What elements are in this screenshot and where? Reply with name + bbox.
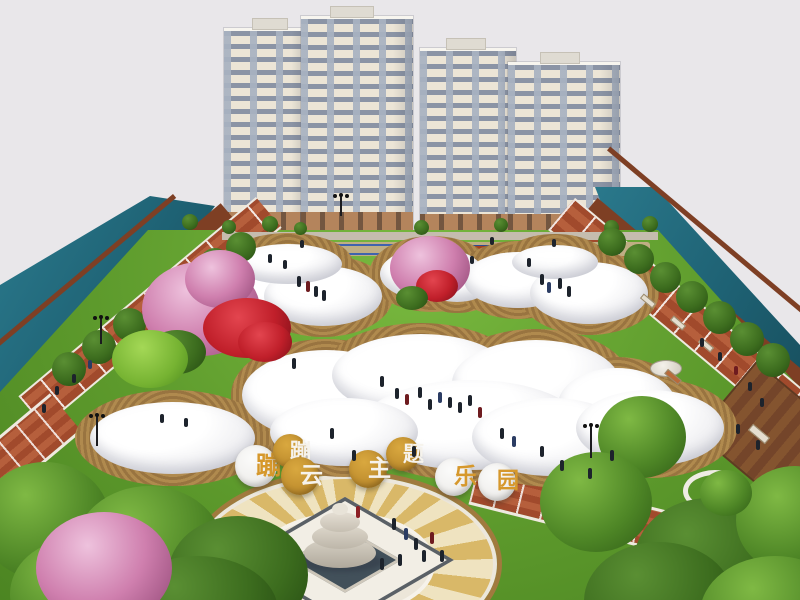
person	[470, 256, 474, 264]
sign-circle-7: 园	[478, 463, 516, 501]
tree	[182, 214, 198, 230]
person	[395, 388, 399, 399]
tree	[756, 343, 790, 377]
street-lamp	[100, 318, 102, 344]
person	[718, 352, 722, 361]
shrub	[396, 286, 428, 310]
person	[560, 460, 564, 471]
person	[405, 394, 409, 405]
tree	[82, 330, 116, 364]
big-leaf-plant	[112, 330, 188, 388]
person	[314, 286, 318, 297]
person	[404, 528, 408, 540]
person	[283, 260, 287, 269]
street-lamp	[340, 196, 342, 216]
person	[297, 276, 301, 287]
tree	[700, 470, 752, 516]
rooftop-structure	[446, 38, 486, 50]
tree	[294, 222, 307, 235]
person	[300, 240, 304, 248]
apartment-tower	[420, 48, 516, 234]
person	[512, 436, 516, 447]
person	[547, 282, 551, 293]
person	[414, 538, 418, 550]
street-lamp	[590, 426, 592, 458]
person	[440, 550, 444, 562]
person	[448, 397, 452, 408]
sign-circle-6: 乐	[435, 458, 473, 496]
tree	[540, 452, 652, 552]
person	[468, 395, 472, 406]
person	[418, 387, 422, 398]
person	[412, 446, 416, 457]
tree	[222, 220, 236, 234]
tree	[52, 352, 86, 386]
person	[55, 386, 59, 395]
person	[392, 518, 396, 530]
person	[527, 258, 531, 267]
apartment-tower	[224, 28, 306, 232]
person	[558, 278, 562, 289]
sign-circle-1: 蹦	[235, 445, 277, 487]
person	[490, 237, 494, 245]
person	[322, 290, 326, 301]
tree	[624, 244, 654, 274]
person	[700, 338, 704, 347]
render-canvas: 蹦 蹦 云 主 题 乐 园	[0, 0, 800, 600]
person	[42, 404, 46, 413]
person	[588, 468, 592, 479]
sign-char: 园	[497, 463, 519, 501]
person	[356, 506, 360, 518]
person	[760, 398, 764, 407]
person	[734, 366, 738, 375]
person	[567, 286, 571, 297]
person	[552, 239, 556, 247]
fountain-tier	[320, 512, 360, 532]
tree	[642, 216, 658, 232]
person	[398, 554, 402, 566]
tree	[676, 281, 708, 313]
person	[500, 428, 504, 439]
person	[748, 382, 752, 391]
fountain-top	[332, 503, 348, 515]
person	[428, 399, 432, 410]
tree	[598, 228, 626, 256]
apartment-tower	[301, 16, 413, 232]
person	[380, 558, 384, 570]
bouncing-cloud-pad	[90, 402, 255, 474]
person	[72, 374, 76, 383]
rooftop-structure	[540, 52, 580, 64]
tree	[703, 301, 736, 334]
tree	[650, 262, 681, 293]
person	[756, 440, 760, 450]
person	[352, 450, 356, 461]
street-lamp	[96, 416, 98, 446]
rooftop-structure	[252, 18, 288, 30]
person	[438, 392, 442, 403]
person	[610, 450, 614, 461]
rose-bush	[238, 322, 292, 362]
sign-char: 乐	[454, 458, 477, 496]
tree	[494, 218, 508, 232]
person	[540, 274, 544, 285]
sign-circle-3: 云	[281, 457, 319, 495]
person	[736, 424, 740, 434]
tree	[262, 216, 278, 232]
rooftop-structure	[330, 6, 374, 18]
person	[306, 281, 310, 292]
person	[330, 428, 334, 439]
person	[268, 254, 272, 263]
person	[458, 402, 462, 413]
person	[88, 360, 92, 369]
person	[422, 550, 426, 562]
person	[292, 358, 296, 369]
person	[540, 446, 544, 457]
tree	[414, 220, 429, 235]
person	[380, 376, 384, 387]
person	[478, 407, 482, 418]
sign-char: 云	[300, 457, 323, 495]
person	[430, 532, 434, 544]
person	[184, 418, 188, 427]
person	[160, 414, 164, 423]
bouncing-cloud	[512, 245, 598, 279]
